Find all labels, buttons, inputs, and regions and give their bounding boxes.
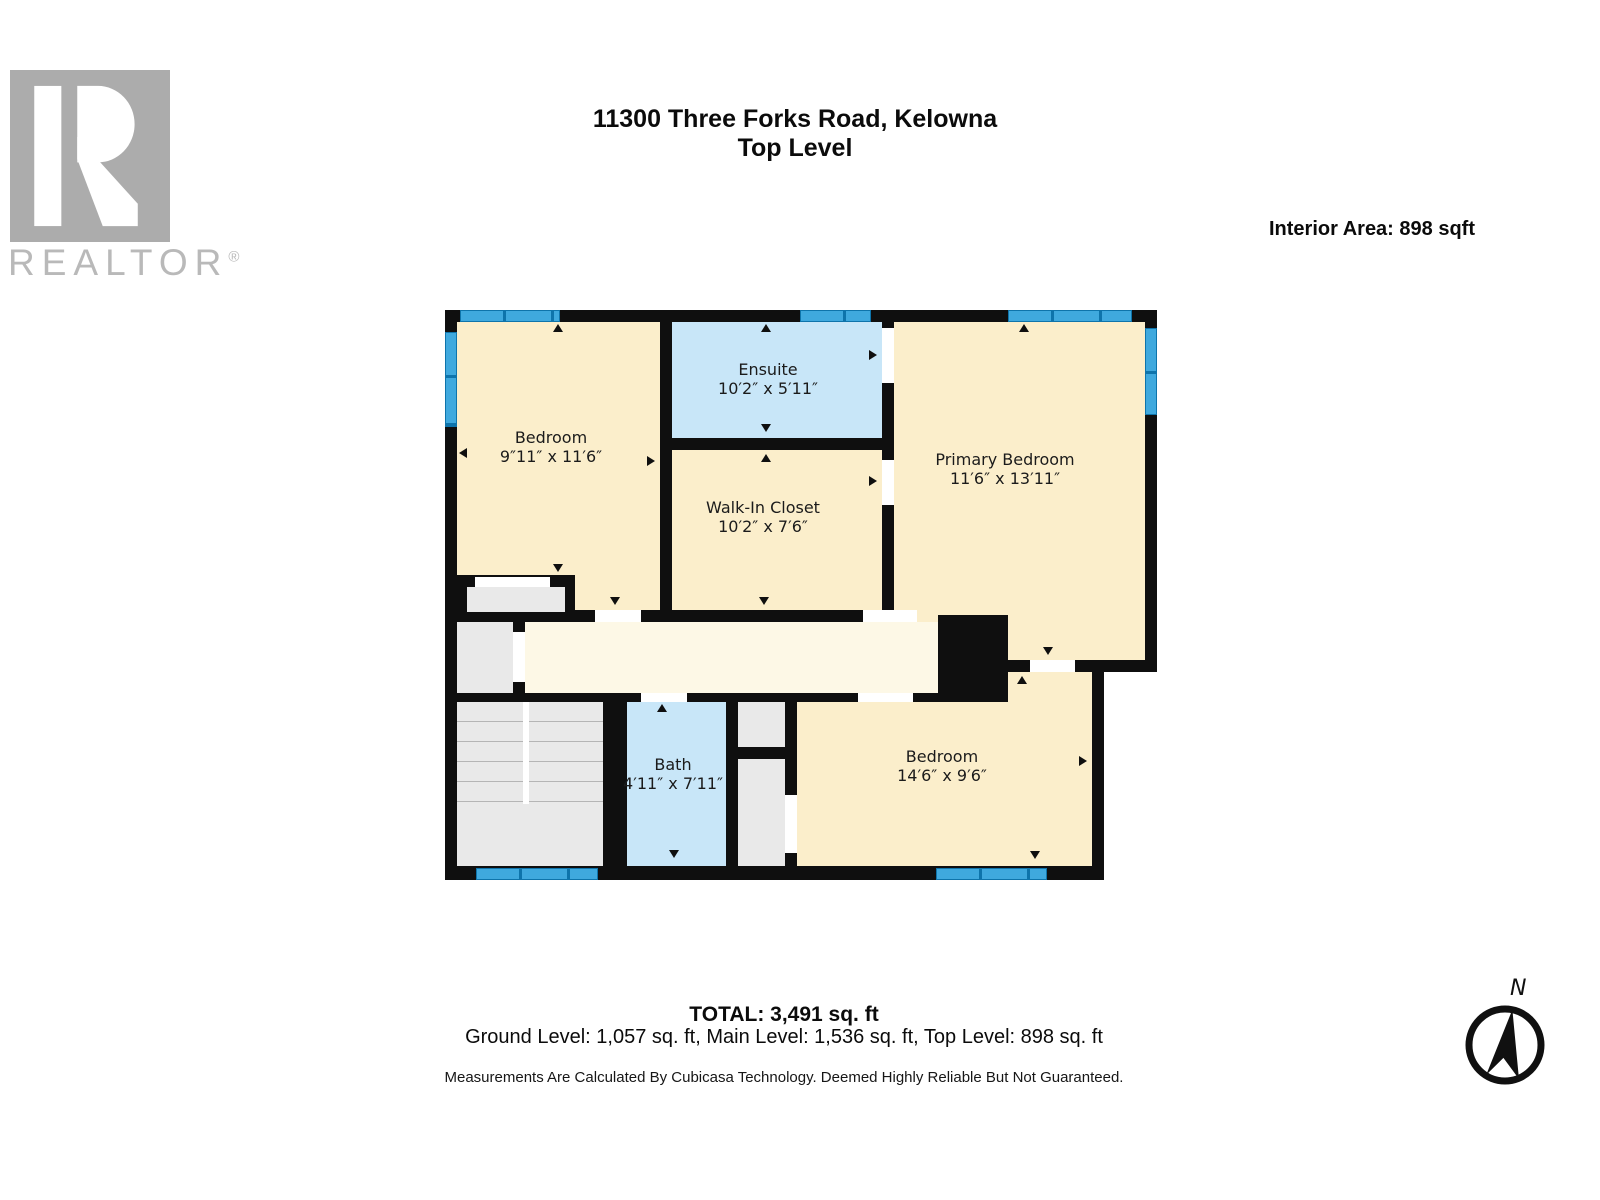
window-bottom-stairs [476,868,598,880]
staircase [457,702,603,866]
window-left-bedroom [445,332,457,427]
door-ensuite-primary [882,328,894,383]
door-arrow-icon [869,476,877,486]
room-dims: 10′2″ x 7′6″ [706,517,820,536]
stair-steps-right [529,702,603,804]
floorplan-page: REALTOR® 11300 Three Forks Road, Kelowna… [0,0,1600,1200]
compass-north-label: N [1510,976,1526,1001]
window-top-ensuite [800,310,871,322]
address-line: 11300 Three Forks Road, Kelowna [395,105,1195,134]
levels-area-label: Ground Level: 1,057 sq. ft, Main Level: … [304,1026,1264,1049]
closet-hall-left [457,622,513,693]
door-arrow-icon [1030,851,1040,859]
realtor-r-glyph [10,70,170,242]
label-bedroom-top-left: Bedroom 9″11″ x 11′6″ [500,428,602,466]
label-walk-in-closet: Walk-In Closet 10′2″ x 7′6″ [706,498,820,536]
linen-closet-lower [738,759,785,866]
door-arrow-icon [761,454,771,462]
window-top-primary [1008,310,1132,322]
door-primary-bedroom [1030,660,1075,672]
room-name: Ensuite [718,360,818,379]
compass-icon: N [1448,965,1562,1101]
door-arrow-icon [869,350,877,360]
door-arrow-icon [761,424,771,432]
floorplan-canvas: Bedroom 9″11″ x 11′6″ Ensuite 10′2″ x 5′… [445,310,1157,880]
door-arrow-icon [647,456,655,466]
door-arrow-icon [1019,324,1029,332]
room-name: Bedroom [897,747,987,766]
room-name: Walk-In Closet [706,498,820,517]
door-arrow-icon [759,597,769,605]
door-arrow-icon [459,448,467,458]
stair-steps-left [457,702,523,804]
room-dims: 11′6″ x 13′11″ [935,469,1074,488]
exterior-cutout [1104,672,1157,880]
room-primary-bedroom [894,322,1145,660]
closet-door-opening [475,577,550,587]
label-ensuite: Ensuite 10′2″ x 5′11″ [718,360,818,398]
door-arrow-icon [1079,756,1087,766]
door-hall-bedroom [858,693,913,702]
realtor-logo-icon [10,70,170,242]
door-arrow-icon [1017,676,1027,684]
room-name: Bath [623,755,723,774]
door-closet-primary [882,460,894,505]
label-bedroom-bottom-right: Bedroom 14′6″ x 9′6″ [897,747,987,785]
room-name: Bedroom [500,428,602,447]
label-primary-bedroom: Primary Bedroom 11′6″ x 13′11″ [935,450,1074,488]
window-top-left [460,310,560,322]
room-dims: 10′2″ x 5′11″ [718,379,818,398]
level-line: Top Level [395,134,1195,163]
room-dims: 9″11″ x 11′6″ [500,447,602,466]
closet-small [467,587,565,612]
page-title: 11300 Three Forks Road, Kelowna Top Leve… [395,105,1195,162]
total-area-label: TOTAL: 3,491 sq. ft [384,1003,1184,1027]
window-bottom-bedroom [936,868,1047,880]
door-bath [641,693,687,702]
door-arrow-icon [1043,647,1053,655]
door-arrow-icon [553,564,563,572]
room-dims: 4′11″ x 7′11″ [623,774,723,793]
door-arrow-icon [761,324,771,332]
interior-area-label: Interior Area: 898 sqft [1075,218,1475,241]
realtor-logo-text: REALTOR® [8,242,248,284]
door-bedroom-top-left [595,610,641,622]
room-name: Primary Bedroom [935,450,1074,469]
door-arrow-icon [553,324,563,332]
hallway [525,622,938,693]
registered-mark: ® [228,249,239,266]
label-bath: Bath 4′11″ x 7′11″ [623,755,723,793]
door-arrow-icon [669,850,679,858]
linen-closet-upper [738,702,785,747]
door-bedroom-bottom-right [785,795,797,853]
door-closet-hall [863,610,917,622]
room-dims: 14′6″ x 9′6″ [897,766,987,785]
door-arrow-icon [610,597,620,605]
void-wall-block [938,615,1008,705]
door-hall-left [513,632,525,682]
realtor-wordmark: REALTOR [8,242,228,283]
disclaimer-text: Measurements Are Calculated By Cubicasa … [384,1069,1184,1086]
door-arrow-icon [657,704,667,712]
window-right-primary [1145,328,1157,415]
